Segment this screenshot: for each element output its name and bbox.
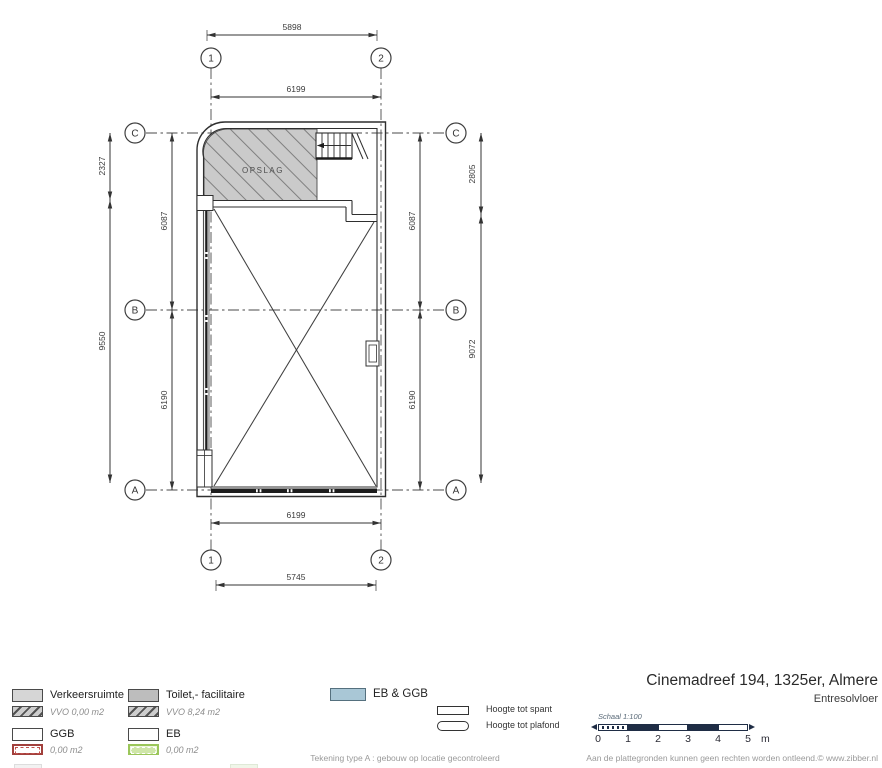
scale-bar-right-arrow-icon [749, 724, 755, 730]
dim-top-inner: 6199 [287, 84, 306, 94]
legend-swatch-eb [128, 728, 159, 741]
legend-swatch-cutoff-right [230, 764, 258, 768]
bottom-window-band [211, 489, 377, 494]
dim-left-inner-lower: 6190 [159, 390, 169, 409]
legend-sub-verkeersruimte: VVO 0,00 m2 [50, 707, 104, 718]
opslag-room: OPSLAG [203, 129, 317, 201]
opslag-bottom-wall [204, 201, 378, 222]
wall-jog-top-left [197, 196, 213, 211]
grid-bubble-2-bottom: 2 [378, 556, 384, 567]
stairs [316, 133, 368, 159]
dim-right-outer-upper: 2805 [467, 164, 477, 183]
dim-right-inner-upper: 6087 [407, 211, 417, 230]
grid-bubble-1-top: 1 [208, 54, 214, 65]
dimensions-horizontal [207, 30, 381, 591]
scale-label: Schaal 1:100 [598, 712, 788, 721]
grid-bubble-c-right: C [452, 129, 459, 140]
scale-tick-3: 3 [685, 733, 691, 745]
footer-drawing-type: Tekening type A : gebouw op locatie geco… [310, 753, 500, 763]
scale-tick-4: 4 [715, 733, 721, 745]
dim-left-outer-lower: 9550 [97, 331, 107, 350]
legend-swatch-cutoff-left [14, 764, 42, 768]
scale-bar [598, 724, 748, 731]
legend-swatch-ggb-area [12, 744, 43, 755]
legend-swatch-eb-ggb [330, 688, 366, 701]
scale-ticks: 0 1 2 3 4 5 m [598, 733, 748, 747]
scale-block: Schaal 1:100 0 1 2 3 4 5 m [598, 712, 788, 747]
legend-sub-toilet: VVO 8,24 m2 [166, 707, 220, 718]
scale-segment-dotted [598, 724, 628, 731]
scale-bar-left-arrow-icon [591, 724, 597, 730]
floor-plan-page: OPSLAG [0, 0, 882, 768]
room-label-opslag: OPSLAG [242, 166, 284, 175]
grid-bubble-2-top: 2 [378, 54, 384, 65]
title-block: Cinemadreef 194, 1325er, Almere Entresol… [646, 672, 878, 705]
height-symbol-spant [437, 706, 469, 715]
scale-segment-filled-1 [628, 724, 658, 731]
scale-segment-filled-2 [688, 724, 718, 731]
legend-label-verkeersruimte: Verkeersruimte [50, 689, 124, 702]
scale-unit: m [761, 733, 770, 745]
dim-bottom-inner: 6199 [287, 510, 306, 520]
dim-right-inner-lower: 6190 [407, 390, 417, 409]
void-cross [214, 209, 376, 486]
height-label-plafond: Hoogte tot plafond [486, 720, 560, 730]
legend-swatch-ggb [12, 728, 43, 741]
grid-bubble-b-left: B [132, 306, 139, 317]
page-title: Cinemadreef 194, 1325er, Almere [646, 672, 878, 690]
scale-segment-empty-2 [718, 724, 748, 731]
legend-swatch-toilet [128, 689, 159, 702]
legend-sub-ggb: 0,00 m2 [50, 745, 83, 756]
dimension-labels-horizontal: 5898 6199 6199 5745 [283, 22, 306, 582]
right-wall-niche [366, 341, 379, 366]
height-symbol-plafond [437, 721, 469, 731]
legend-label-toilet: Toilet,- facilitaire [166, 689, 245, 702]
scale-segment-empty-1 [658, 724, 688, 731]
height-label-spant: Hoogte tot spant [486, 704, 552, 714]
grid-bubble-a-right: A [453, 486, 460, 497]
grid-bubble-a-left: A [132, 486, 139, 497]
legend-swatch-verkeersruimte-vvo [12, 706, 43, 717]
scale-tick-5: 5 [745, 733, 751, 745]
floor-plan-svg: OPSLAG [0, 0, 560, 640]
dim-right-outer-lower: 9072 [467, 339, 477, 358]
legend-sub-eb: 0,00 m2 [166, 745, 199, 756]
grid-bubble-c-left: C [131, 129, 138, 140]
legend-label-eb: EB [166, 728, 181, 741]
dim-bottom-outer: 5745 [287, 572, 306, 582]
grid-bubble-1-bottom: 1 [208, 556, 214, 567]
dim-top-outer: 5898 [283, 22, 302, 32]
footer-disclaimer: Aan de plattegronden kunnen geen rechten… [586, 753, 878, 763]
legend-swatch-verkeersruimte [12, 689, 43, 702]
corner-block-bottom-left [197, 450, 212, 487]
dim-left-inner-upper: 6087 [159, 211, 169, 230]
grid-bubble-b-right: B [453, 306, 460, 317]
scale-tick-2: 2 [655, 733, 661, 745]
legend-label-ggb: GGB [50, 728, 74, 741]
scale-tick-1: 1 [625, 733, 631, 745]
legend-swatch-eb-area [128, 744, 159, 755]
legend-swatch-toilet-vvo [128, 706, 159, 717]
dim-left-outer-upper: 2327 [97, 156, 107, 175]
page-subtitle: Entresolvloer [646, 693, 878, 705]
scale-tick-0: 0 [595, 733, 601, 745]
legend-label-eb-ggb: EB & GGB [373, 688, 428, 701]
